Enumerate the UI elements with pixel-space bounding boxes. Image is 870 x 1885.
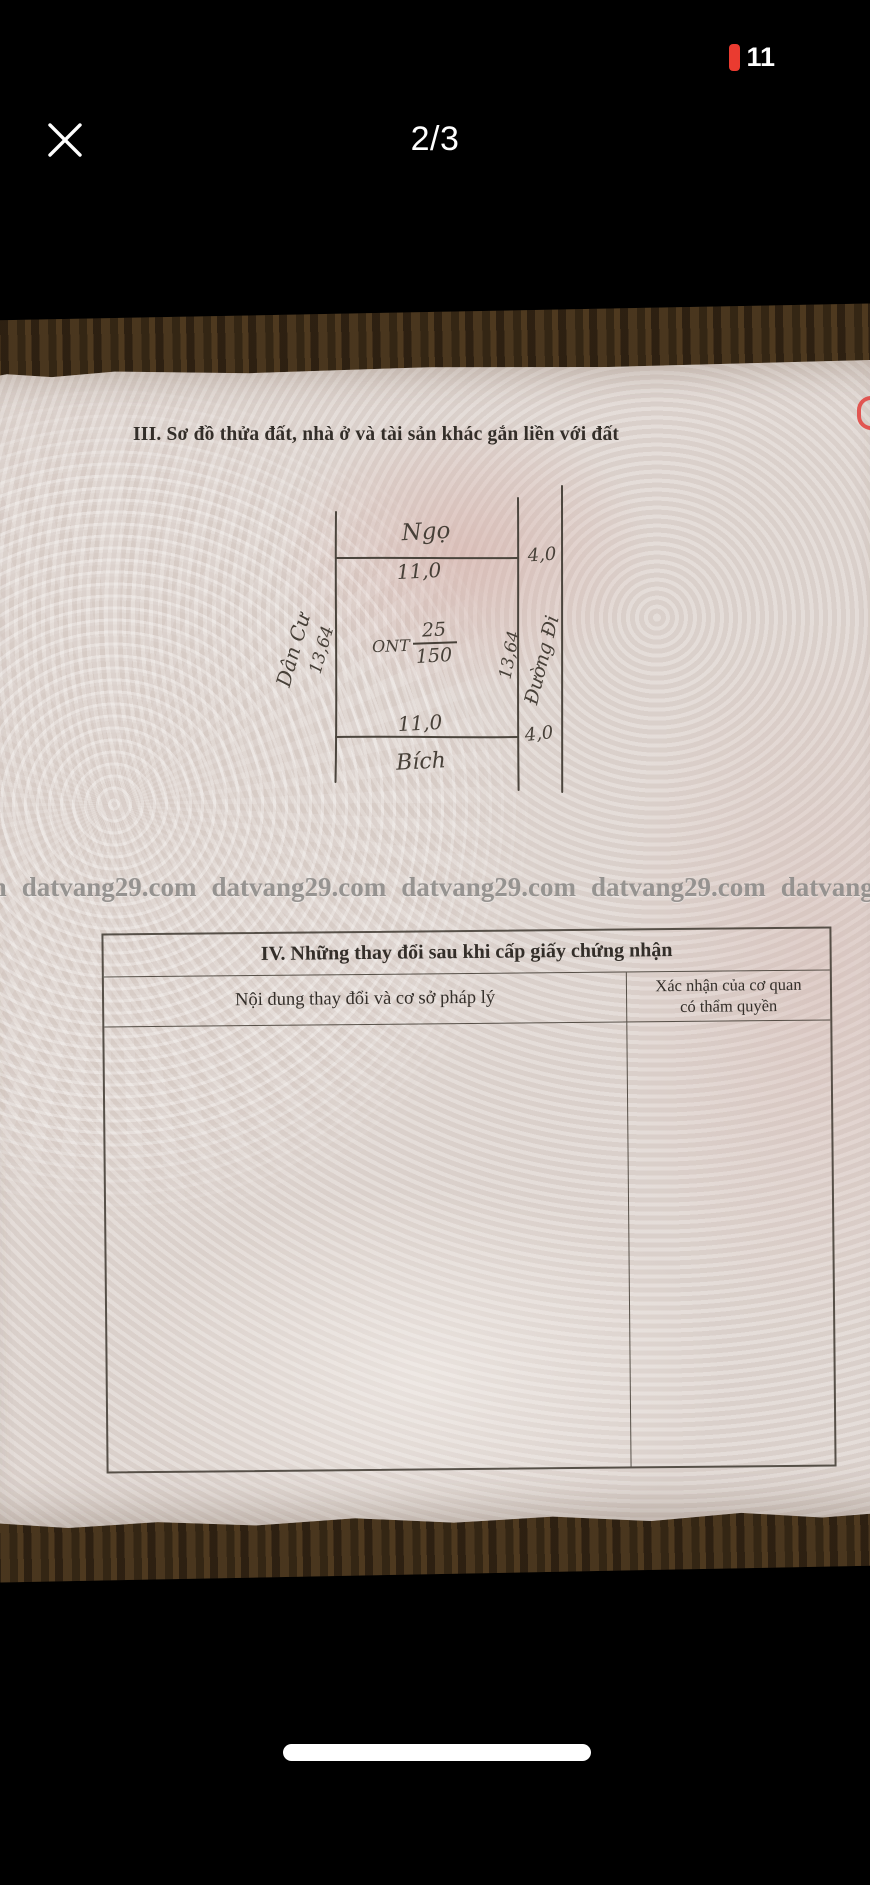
plot-left-line (336, 512, 337, 782)
diagram-label-bottom-length: 11,0 (397, 710, 443, 736)
diagram-label-north-neighbor: Ngọ (401, 518, 451, 547)
watermark-text: datvang29.com (0, 872, 7, 902)
diagram-label-top-length: 11,0 (396, 558, 442, 584)
section4-col1-header: Nội dung thay đổi và cơ sở pháp lý (104, 972, 627, 1026)
section4-col1-empty-cell (104, 1022, 631, 1471)
document-photo[interactable]: III. Sơ đồ thửa đất, nhà ở và tài sản kh… (0, 0, 870, 1885)
viewer-topbar: 2/3 11 (0, 0, 870, 180)
section4-table: IV. Những thay đổi sau khi cấp giấy chứn… (101, 927, 836, 1474)
section4-col2-header: Xác nhận của cơ quan có thẩm quyền (627, 971, 830, 1022)
diagram-label-south-neighbor: Bích (396, 748, 447, 776)
battery-status: 11 (729, 40, 775, 74)
watermark-row: datvang29.comdatvang29.comdatvang29.comd… (0, 872, 870, 903)
battery-percent: 11 (746, 42, 775, 73)
watermark-text: datvang29.com (591, 872, 766, 902)
section4-title: IV. Những thay đổi sau khi cấp giấy chứn… (103, 929, 829, 978)
watermark-text: datvang29.com (212, 872, 387, 902)
section4-col2-empty-cell (627, 1021, 834, 1467)
section4-col2-header-line1: Xác nhận của cơ quan (655, 975, 801, 997)
battery-low-icon (729, 44, 740, 71)
diagram-label-parcel-number: 25 (421, 618, 446, 641)
section4-col2-header-line2: có thẩm quyền (680, 996, 777, 1018)
watermark-text: datvang29.com (401, 872, 576, 902)
diagram-label-land-use-code: ONT (372, 636, 410, 656)
section3-title: III. Sơ đồ thửa đất, nhà ở và tài sản kh… (133, 424, 653, 446)
diagram-label-road-top-width: 4,0 (527, 544, 557, 567)
home-indicator[interactable] (283, 1744, 591, 1761)
watermark-text: datvang29.com (781, 872, 870, 902)
diagram-label-parcel-area: 150 (415, 644, 452, 668)
photo-viewer-screen: III. Sơ đồ thửa đất, nhà ở và tài sản kh… (0, 0, 870, 1885)
diagram-label-road-bottom-width: 4,0 (524, 722, 555, 746)
page-indicator: 2/3 (0, 120, 870, 159)
watermark-text: datvang29.com (22, 872, 197, 902)
